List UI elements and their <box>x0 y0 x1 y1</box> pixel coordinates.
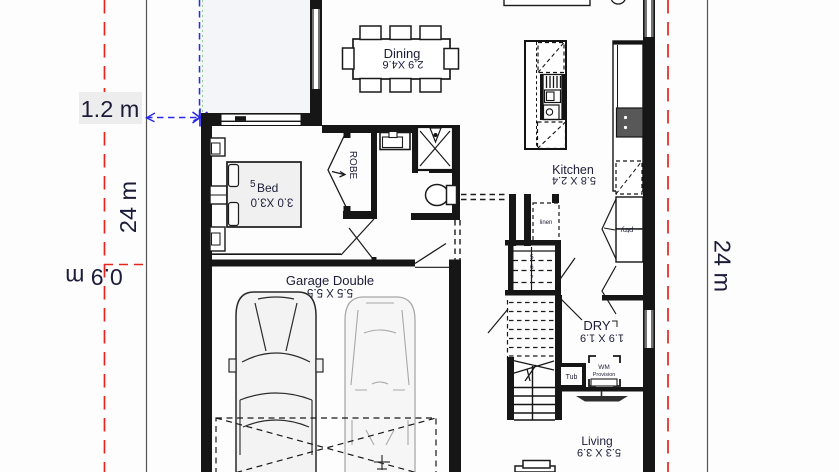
svg-text:24 m: 24 m <box>710 240 736 292</box>
svg-text:linen: linen <box>540 220 553 226</box>
svg-text:0.9 m: 0.9 m <box>65 264 123 290</box>
svg-text:5: 5 <box>530 254 534 261</box>
svg-text:DRY: DRY <box>583 318 611 333</box>
svg-text:2.9 X4.6: 2.9 X4.6 <box>383 58 424 70</box>
svg-text:24 m: 24 m <box>115 181 141 233</box>
svg-text:1.9 X 1.9: 1.9 X 1.9 <box>580 332 624 344</box>
svg-text:6: 6 <box>530 264 534 271</box>
svg-text:5: 5 <box>250 179 256 190</box>
svg-text:ROBE: ROBE <box>347 151 358 180</box>
svg-text:Bed: Bed <box>257 181 278 195</box>
svg-text:5.8 X 2.4: 5.8 X 2.4 <box>552 174 596 186</box>
svg-text:Provision: Provision <box>593 372 616 378</box>
svg-text:Tub: Tub <box>566 374 578 381</box>
svg-text:5.5 X 5.5: 5.5 X 5.5 <box>307 286 353 298</box>
svg-text:WM: WM <box>598 364 610 371</box>
svg-text:7: 7 <box>530 275 534 282</box>
svg-text:1.2 m: 1.2 m <box>81 96 140 122</box>
svg-text:ptry: ptry <box>621 226 634 235</box>
svg-text:Living: Living <box>581 434 612 448</box>
svg-text:5.3 X 3.9: 5.3 X 3.9 <box>577 446 621 458</box>
svg-text:3.0 X3.0: 3.0 X3.0 <box>251 196 294 208</box>
svg-text:Garage Double: Garage Double <box>286 273 374 288</box>
